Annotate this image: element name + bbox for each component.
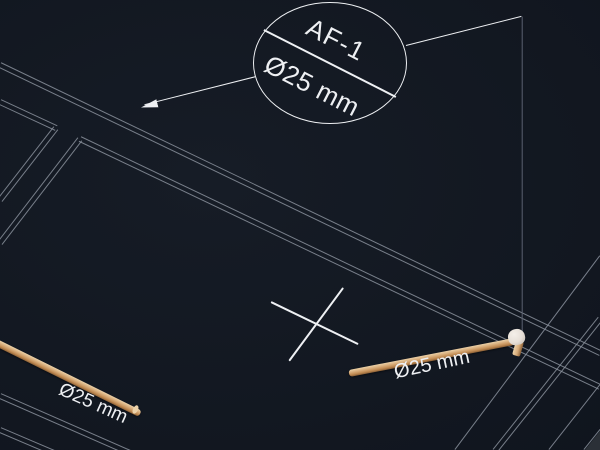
cad-viewport: Ø25 mm Ø25 mm AF-1 Ø25 mm — [0, 0, 600, 450]
wall-bottom-inner[interactable] — [0, 427, 55, 450]
cross-marker-line-b[interactable] — [288, 287, 343, 361]
leader-line-right[interactable] — [406, 16, 521, 46]
riser-leader-line[interactable] — [521, 17, 522, 332]
partition-wall-edge-2[interactable] — [0, 137, 82, 245]
wall-right-1[interactable] — [454, 256, 600, 450]
leader-line-left[interactable] — [144, 76, 255, 105]
partition-wall-edge-1[interactable] — [0, 126, 58, 202]
wall-top-inner-left[interactable] — [0, 99, 57, 130]
corner-shadow-shape — [585, 431, 600, 450]
pipe-label-right[interactable]: Ø25 mm — [392, 346, 472, 384]
leader-arrowhead-icon — [140, 98, 159, 111]
